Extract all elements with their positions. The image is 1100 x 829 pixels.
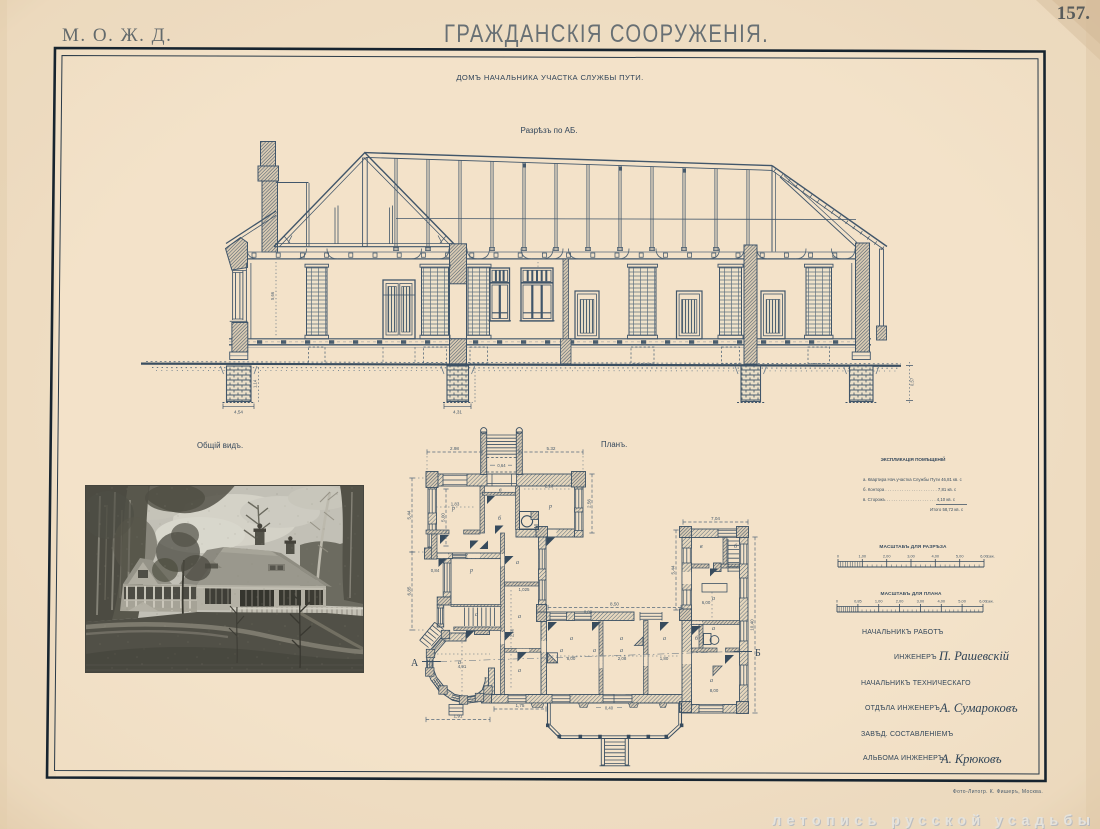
svg-text:ЭКСПЛИКАЦІЯ ПОМѢЩЕНІЙ: ЭКСПЛИКАЦІЯ ПОМѢЩЕНІЙ: [881, 455, 946, 462]
svg-text:а: а: [516, 560, 519, 566]
svg-text:1,75: 1,75: [516, 703, 525, 708]
svg-text:0,88: 0,88: [584, 610, 593, 615]
svg-text:ИНЖЕНЕРЪ: ИНЖЕНЕРЪ: [894, 654, 937, 661]
svg-text:р: р: [548, 504, 552, 510]
svg-text:а: а: [712, 596, 715, 602]
svg-text:1,91: 1,91: [454, 714, 463, 719]
svg-text:5,00: 5,00: [440, 513, 445, 522]
svg-text:2,00: 2,00: [896, 599, 904, 604]
svg-text:МАСШТАБЪ ДЛЯ РАЗРѢЗА: МАСШТАБЪ ДЛЯ РАЗРѢЗА: [879, 544, 947, 550]
svg-text:Общій видъ.: Общій видъ.: [197, 441, 243, 450]
svg-text:6,85: 6,85: [406, 586, 411, 595]
svg-text:5,44: 5,44: [670, 565, 675, 574]
svg-text:4,00: 4,00: [938, 599, 946, 604]
svg-text:3,00: 3,00: [907, 554, 915, 559]
svg-text:а: а: [710, 678, 713, 684]
svg-text:5,66: 5,66: [270, 291, 275, 300]
svg-text:МАСШТАБЪ ДЛЯ ПЛАНА: МАСШТАБЪ ДЛЯ ПЛАНА: [880, 591, 941, 597]
svg-text:а: а: [560, 648, 563, 654]
svg-text:0,64: 0,64: [497, 463, 506, 468]
svg-text:2.98: 2.98: [450, 446, 459, 451]
svg-text:А. Крюковъ: А. Крюковъ: [940, 752, 1002, 766]
svg-text:а: а: [518, 668, 521, 674]
svg-text:НАЧАЛЬНИКЪ ТЕХНИЧЕСКАГО: НАЧАЛЬНИКЪ ТЕХНИЧЕСКАГО: [861, 680, 971, 687]
svg-text:Б: Б: [755, 648, 761, 659]
svg-text:А: А: [411, 658, 419, 669]
svg-text:б. Контора . . . . . . . . .: б. Контора . . . . . . . . . . . . . . .…: [863, 487, 957, 492]
svg-text:летопись русской усадьбы: летопись русской усадьбы: [772, 813, 1095, 829]
svg-text:5.32: 5.32: [547, 446, 556, 451]
svg-text:а: а: [712, 626, 715, 632]
svg-text:1,80: 1,80: [660, 656, 669, 661]
svg-text:2.56: 2.56: [586, 499, 591, 508]
svg-text:р: р: [469, 568, 473, 574]
svg-text:в: в: [700, 544, 703, 550]
svg-text:а: а: [570, 636, 573, 642]
svg-text:а: а: [620, 648, 623, 654]
svg-text:2,00: 2,00: [883, 554, 891, 559]
svg-text:саж.: саж.: [987, 554, 995, 559]
svg-text:р: р: [451, 506, 455, 512]
svg-text:4,00: 4,00: [932, 554, 940, 559]
svg-text:ДОМЪ НАЧАЛЬНИКА УЧАСТКА СЛУ: ДОМЪ НАЧАЛЬНИКА УЧАСТКА СЛУЖБЫ ПУТИ.: [456, 73, 643, 82]
svg-text:0,84: 0,84: [431, 568, 440, 573]
svg-text:3,00: 3,00: [917, 599, 925, 604]
svg-text:0,57: 0,57: [910, 377, 915, 386]
svg-text:а: а: [518, 614, 521, 620]
svg-text:7,04: 7,04: [711, 516, 720, 521]
svg-text:0,40: 0,40: [605, 706, 614, 711]
svg-text:1,14: 1,14: [253, 379, 258, 388]
svg-text:в. Сторожъ . . . . . . . . .: в. Сторожъ . . . . . . . . . . . . . . .…: [863, 497, 956, 502]
svg-text:а: а: [663, 636, 666, 642]
svg-text:Разрѣзъ по АБ.: Разрѣзъ по АБ.: [521, 126, 578, 135]
svg-text:4,31: 4,31: [453, 410, 462, 415]
svg-text:5,00: 5,00: [956, 554, 964, 559]
svg-text:8,50: 8,50: [610, 602, 619, 607]
svg-text:ЗАВѢД. СОСТАВЛЕНІЕМЪ: ЗАВѢД. СОСТАВЛЕНІЕМЪ: [861, 731, 954, 738]
svg-text:а. Квартира Нач.участка Служб: а. Квартира Нач.участка Службы Пути 46,8…: [863, 477, 963, 482]
svg-text:НАЧАЛЬНИКЪ РАБОТЪ: НАЧАЛЬНИКЪ РАБОТЪ: [862, 629, 944, 636]
svg-text:Фото-Литогр. К. Фишеръ, Мос: Фото-Литогр. К. Фишеръ, Москва.: [953, 789, 1043, 795]
svg-text:5,00: 5,00: [958, 599, 966, 604]
svg-text:5,44: 5,44: [406, 510, 411, 519]
svg-text:6,00: 6,00: [702, 600, 711, 605]
svg-text:10,40: 10,40: [749, 619, 754, 631]
svg-text:в: в: [499, 488, 502, 494]
svg-text:Итого 58,72 кв. с: Итого 58,72 кв. с: [930, 507, 964, 512]
svg-text:саж.: саж.: [986, 599, 994, 604]
svg-text:П. Рашевскій: П. Рашевскій: [938, 649, 1010, 663]
svg-text:Планъ.: Планъ.: [601, 440, 627, 449]
svg-text:4,54: 4,54: [234, 410, 243, 415]
svg-text:2,50: 2,50: [510, 628, 515, 637]
svg-text:а: а: [620, 636, 623, 642]
svg-text:а: а: [593, 648, 596, 654]
svg-text:АЛЬБОМА ИНЖЕНЕРЪ: АЛЬБОМА ИНЖЕНЕРЪ: [863, 755, 944, 762]
svg-text:1,00: 1,00: [859, 554, 867, 559]
svg-text:ОТДѢЛА ИНЖЕНЕРЪ: ОТДѢЛА ИНЖЕНЕРЪ: [865, 705, 940, 712]
svg-text:0,85: 0,85: [854, 599, 862, 604]
svg-text:а: а: [475, 612, 478, 618]
svg-text:8,00: 8,00: [710, 688, 719, 693]
svg-text:2.13: 2.13: [545, 484, 554, 489]
svg-text:2,08: 2,08: [618, 656, 627, 661]
svg-text:1,00: 1,00: [875, 599, 883, 604]
svg-text:1,025: 1,025: [519, 587, 531, 592]
svg-text:А. Сумароковъ: А. Сумароковъ: [939, 701, 1018, 715]
